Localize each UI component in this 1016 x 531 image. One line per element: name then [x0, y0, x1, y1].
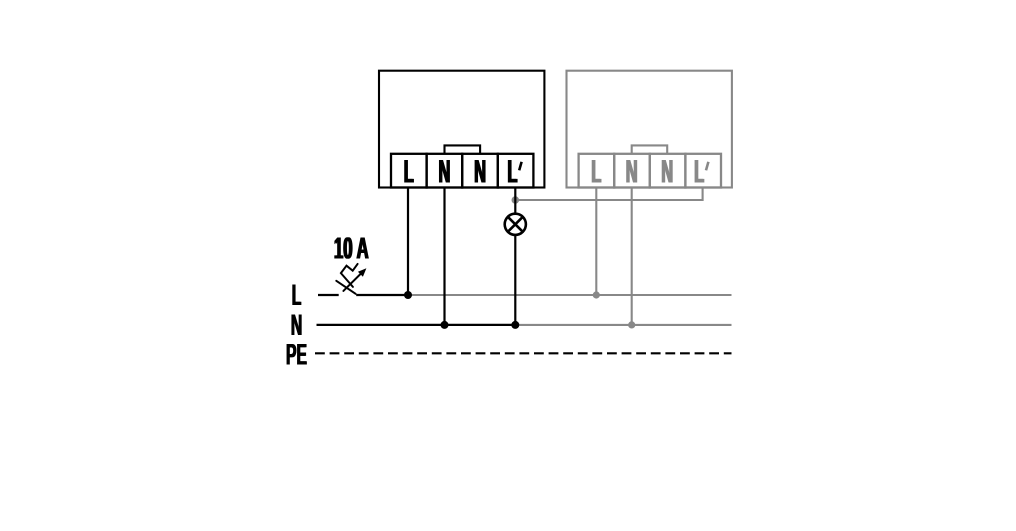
svg-text:L: L [695, 155, 705, 190]
svg-text:N: N [627, 155, 639, 190]
svg-text:10 A: 10 A [335, 231, 370, 266]
svg-text:L: L [592, 155, 602, 190]
svg-text:N: N [662, 155, 674, 190]
svg-text:L: L [292, 279, 302, 313]
svg-text:N: N [439, 155, 451, 190]
svg-text:PE: PE [287, 338, 308, 372]
svg-text:N: N [475, 155, 487, 190]
svg-text:L: L [508, 155, 518, 190]
svg-text:L: L [405, 155, 415, 190]
